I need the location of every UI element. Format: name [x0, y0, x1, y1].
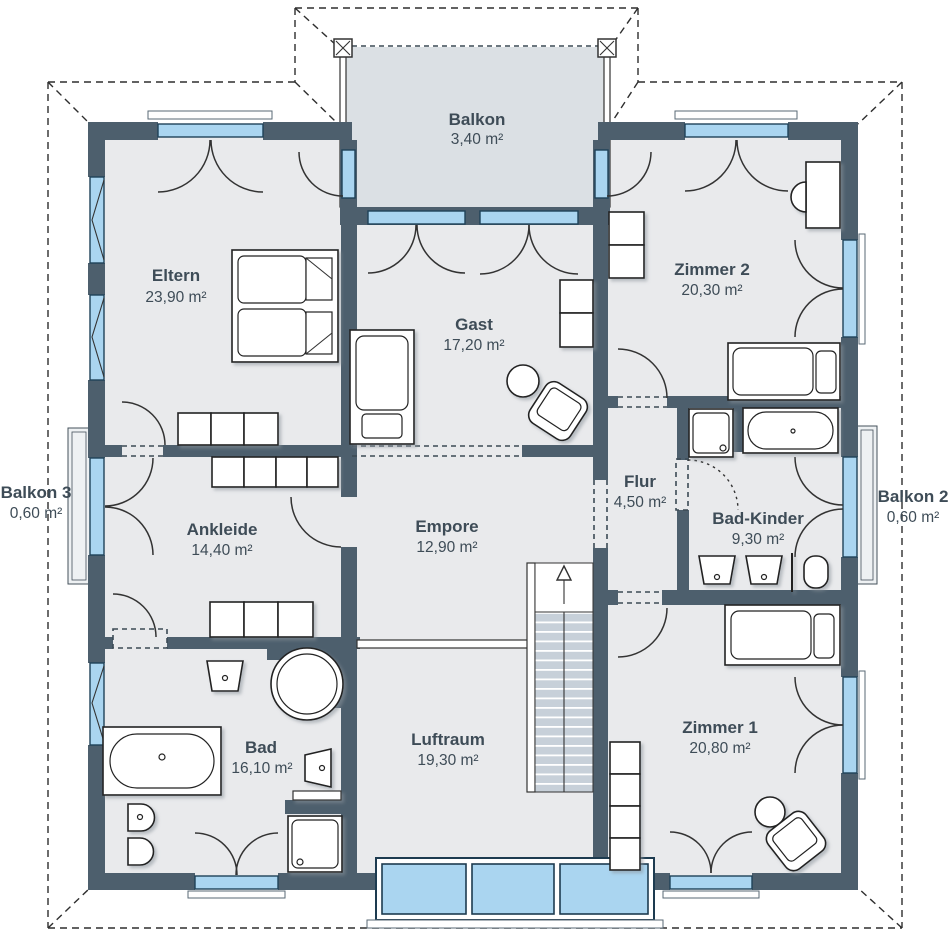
toilet-bad [128, 804, 155, 831]
balcony-2-slab [857, 426, 877, 584]
bed-zimmer2 [728, 343, 840, 400]
balcony-post-right [598, 39, 616, 57]
bidet-bad [128, 838, 154, 865]
shower-bad-corner [288, 816, 342, 872]
window-sill [663, 891, 759, 898]
bed-gast [350, 330, 414, 444]
sink-bad-kinder-1 [699, 556, 735, 584]
room-label-luftraum: Luftraum [411, 730, 485, 749]
room-area-empore: 12,90 m² [416, 539, 477, 556]
room-area-eltern: 23,90 m² [145, 289, 206, 306]
wardrobe-zimmer1 [610, 742, 640, 870]
shelf-gast [560, 280, 593, 347]
window-sill [675, 111, 797, 119]
window-sill [188, 891, 285, 898]
window-sill [148, 111, 272, 119]
room-area-bad: 16,10 m² [231, 760, 292, 777]
window-sill [859, 234, 865, 344]
wardrobe-ankleide-bottom [210, 602, 313, 637]
sink-bad-top [207, 661, 243, 691]
room-area-luftraum: 19,30 m² [417, 752, 478, 769]
room-label-zimmer2: Zimmer 2 [674, 260, 750, 279]
room-label-ankleide: Ankleide [187, 520, 258, 539]
room-area-zimmer1: 20,80 m² [689, 740, 750, 757]
room-label-empore: Empore [415, 517, 478, 536]
room-label-balkon: Balkon [449, 110, 506, 129]
window-zimmer1-right [843, 677, 857, 773]
room-label-bad-kinder: Bad-Kinder [712, 509, 804, 528]
room-area-gast: 17,20 m² [443, 337, 504, 354]
room-area-ankleide: 14,40 m² [191, 542, 252, 559]
balcony-door-eltern [342, 150, 355, 198]
room-label-zimmer1: Zimmer 1 [682, 718, 758, 737]
room-label-balkon2: Balkon 2 [878, 487, 949, 506]
bathtub-bad-kinder [743, 408, 838, 453]
room-area-bad-kinder: 9,30 m² [732, 531, 785, 548]
room-label-eltern: Eltern [152, 266, 200, 285]
room-area-balkon2: 0,60 m² [887, 509, 940, 526]
bed-eltern [232, 250, 338, 362]
balcony-post-left [334, 39, 352, 57]
sink-bad-kinder-2 [746, 556, 782, 584]
empore-railing [357, 640, 532, 648]
wardrobe-eltern [178, 413, 278, 445]
window-zimmer2-right [843, 240, 857, 337]
window-sill [859, 671, 865, 779]
balcony-door-bad-kinder [843, 457, 857, 557]
room-area-balkon: 3,40 m² [451, 131, 504, 148]
window-bad-bottom [195, 876, 278, 889]
shelf-zimmer2 [609, 212, 644, 278]
balcony-door-gast-left [368, 211, 465, 224]
window-eltern-top [158, 124, 263, 137]
balcony-door-gast-right [480, 211, 578, 224]
room-label-flur: Flur [624, 472, 656, 491]
floor-plan-page: Balkon 3,40 m² Eltern 23,90 m² Zimmer 2 … [0, 0, 950, 933]
balcony-door-ankleide [90, 458, 104, 555]
room-label-balkon3: Balkon 3 [1, 483, 72, 502]
shower-round-bad [271, 648, 343, 720]
floor-plan-svg: Balkon 3,40 m² Eltern 23,90 m² Zimmer 2 … [0, 0, 950, 933]
window-zimmer2-top [685, 124, 788, 137]
wardrobe-ankleide-top [212, 457, 338, 487]
sink-bad-right [305, 749, 331, 787]
shower-bad-kinder [689, 409, 733, 457]
room-area-balkon3: 0,60 m² [10, 505, 63, 522]
room-label-gast: Gast [455, 315, 493, 334]
balcony-3-slab [68, 428, 90, 584]
desk-zimmer2 [806, 162, 840, 228]
table-gast [507, 365, 539, 397]
toilet-bad-kinder [804, 556, 828, 588]
room-area-flur: 4,50 m² [614, 494, 667, 511]
window-zimmer1-bottom [670, 876, 752, 889]
stair-stringer [527, 563, 535, 792]
balcony-door-zimmer2 [595, 150, 608, 198]
bathtub-bad [103, 727, 221, 795]
shelf-bad [293, 791, 341, 800]
bed-zimmer1 [725, 605, 840, 665]
room-area-zimmer2: 20,30 m² [681, 282, 742, 299]
room-label-bad: Bad [245, 738, 277, 757]
